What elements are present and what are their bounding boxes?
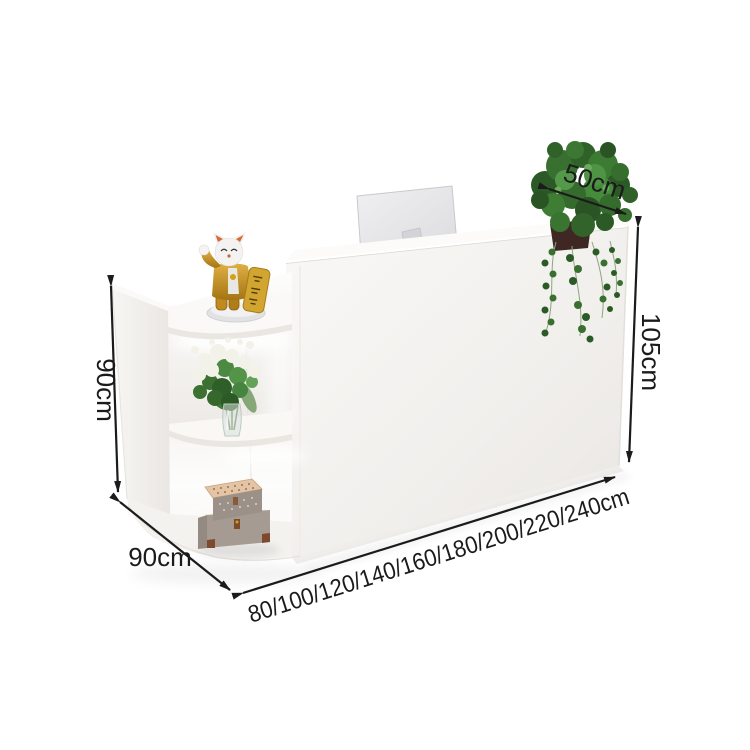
- flower-vase: [223, 404, 242, 436]
- product-image: 50cm 105cm 90cm 90cm 80/100/120/140/160/…: [0, 0, 750, 750]
- dimension-cabinet-depth-label: 90cm: [128, 542, 192, 572]
- dimension-cabinet-height-label: 90cm: [91, 358, 121, 422]
- reception-desk-scene: 50cm 105cm 90cm 90cm 80/100/120/140/160/…: [0, 0, 750, 750]
- dimension-counter-height-label: 105cm: [636, 313, 666, 391]
